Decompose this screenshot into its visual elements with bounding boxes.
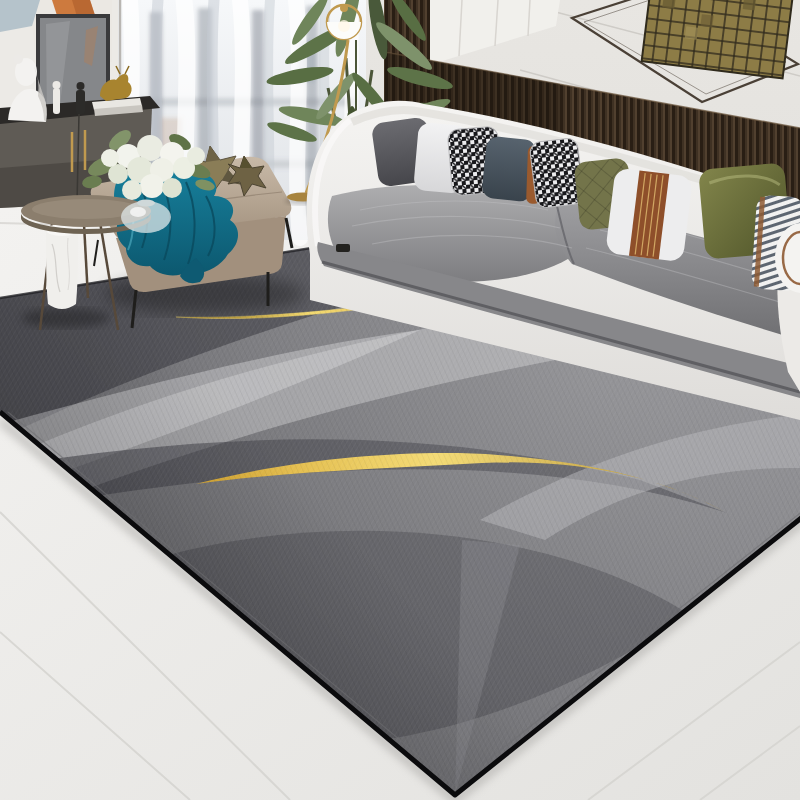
table-shadow bbox=[22, 308, 110, 328]
living-room-photo bbox=[0, 0, 800, 800]
lamp-glow bbox=[338, 20, 350, 32]
lamp-cap bbox=[340, 4, 348, 12]
marble-pedestal bbox=[46, 230, 78, 309]
pillow-white-rust-stripe bbox=[605, 167, 693, 262]
sofa-foot bbox=[336, 244, 350, 252]
scene-canvas bbox=[0, 0, 800, 800]
